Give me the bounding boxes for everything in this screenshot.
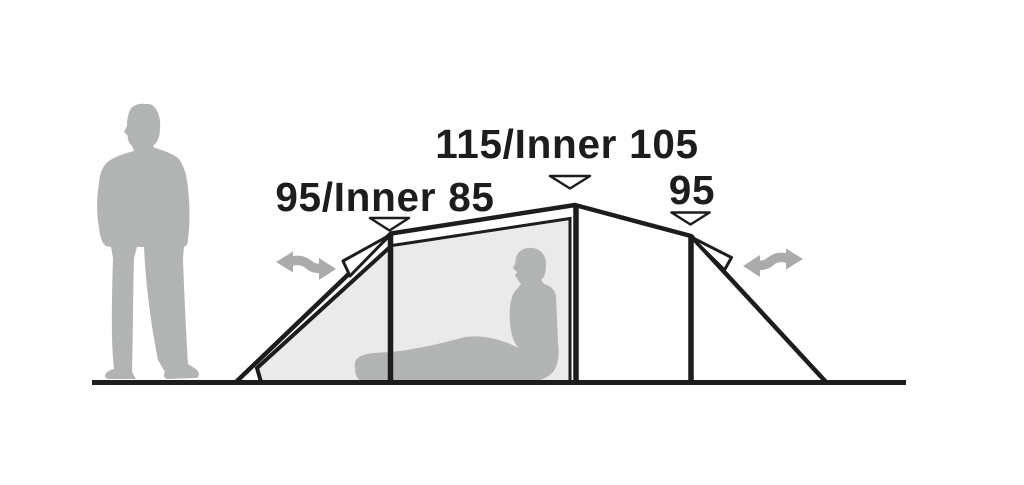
svg-text:95: 95: [669, 167, 715, 213]
svg-text:95/Inner 85: 95/Inner 85: [275, 174, 494, 220]
svg-text:115/Inner 105: 115/Inner 105: [435, 121, 699, 167]
